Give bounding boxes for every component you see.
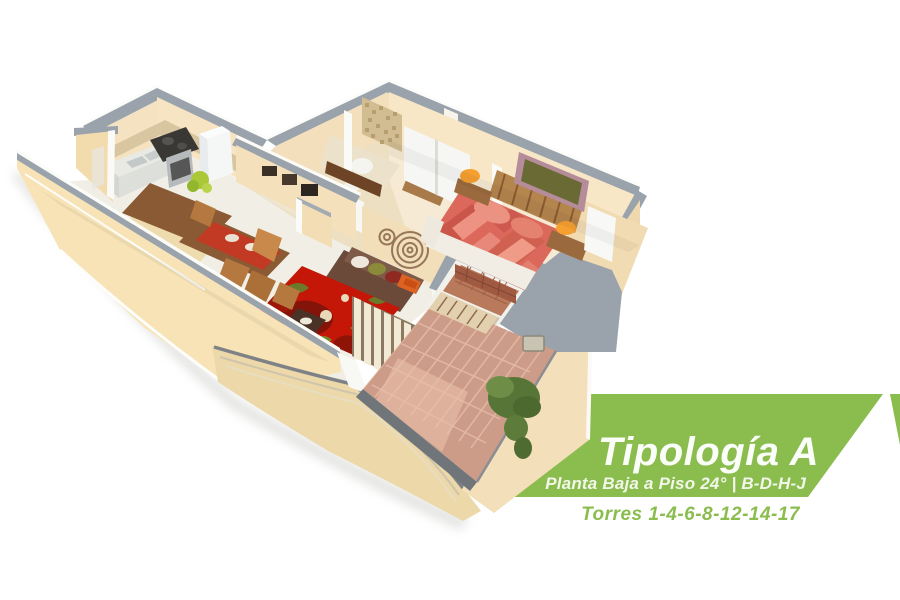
svg-text:Tipología A: Tipología A xyxy=(598,430,819,474)
svg-text:Torres 1-4-6-8-12-14-17: Torres 1-4-6-8-12-14-17 xyxy=(581,504,801,525)
svg-text:Planta Baja a Piso 24° | B-D-H: Planta Baja a Piso 24° | B-D-H-J xyxy=(545,474,806,493)
